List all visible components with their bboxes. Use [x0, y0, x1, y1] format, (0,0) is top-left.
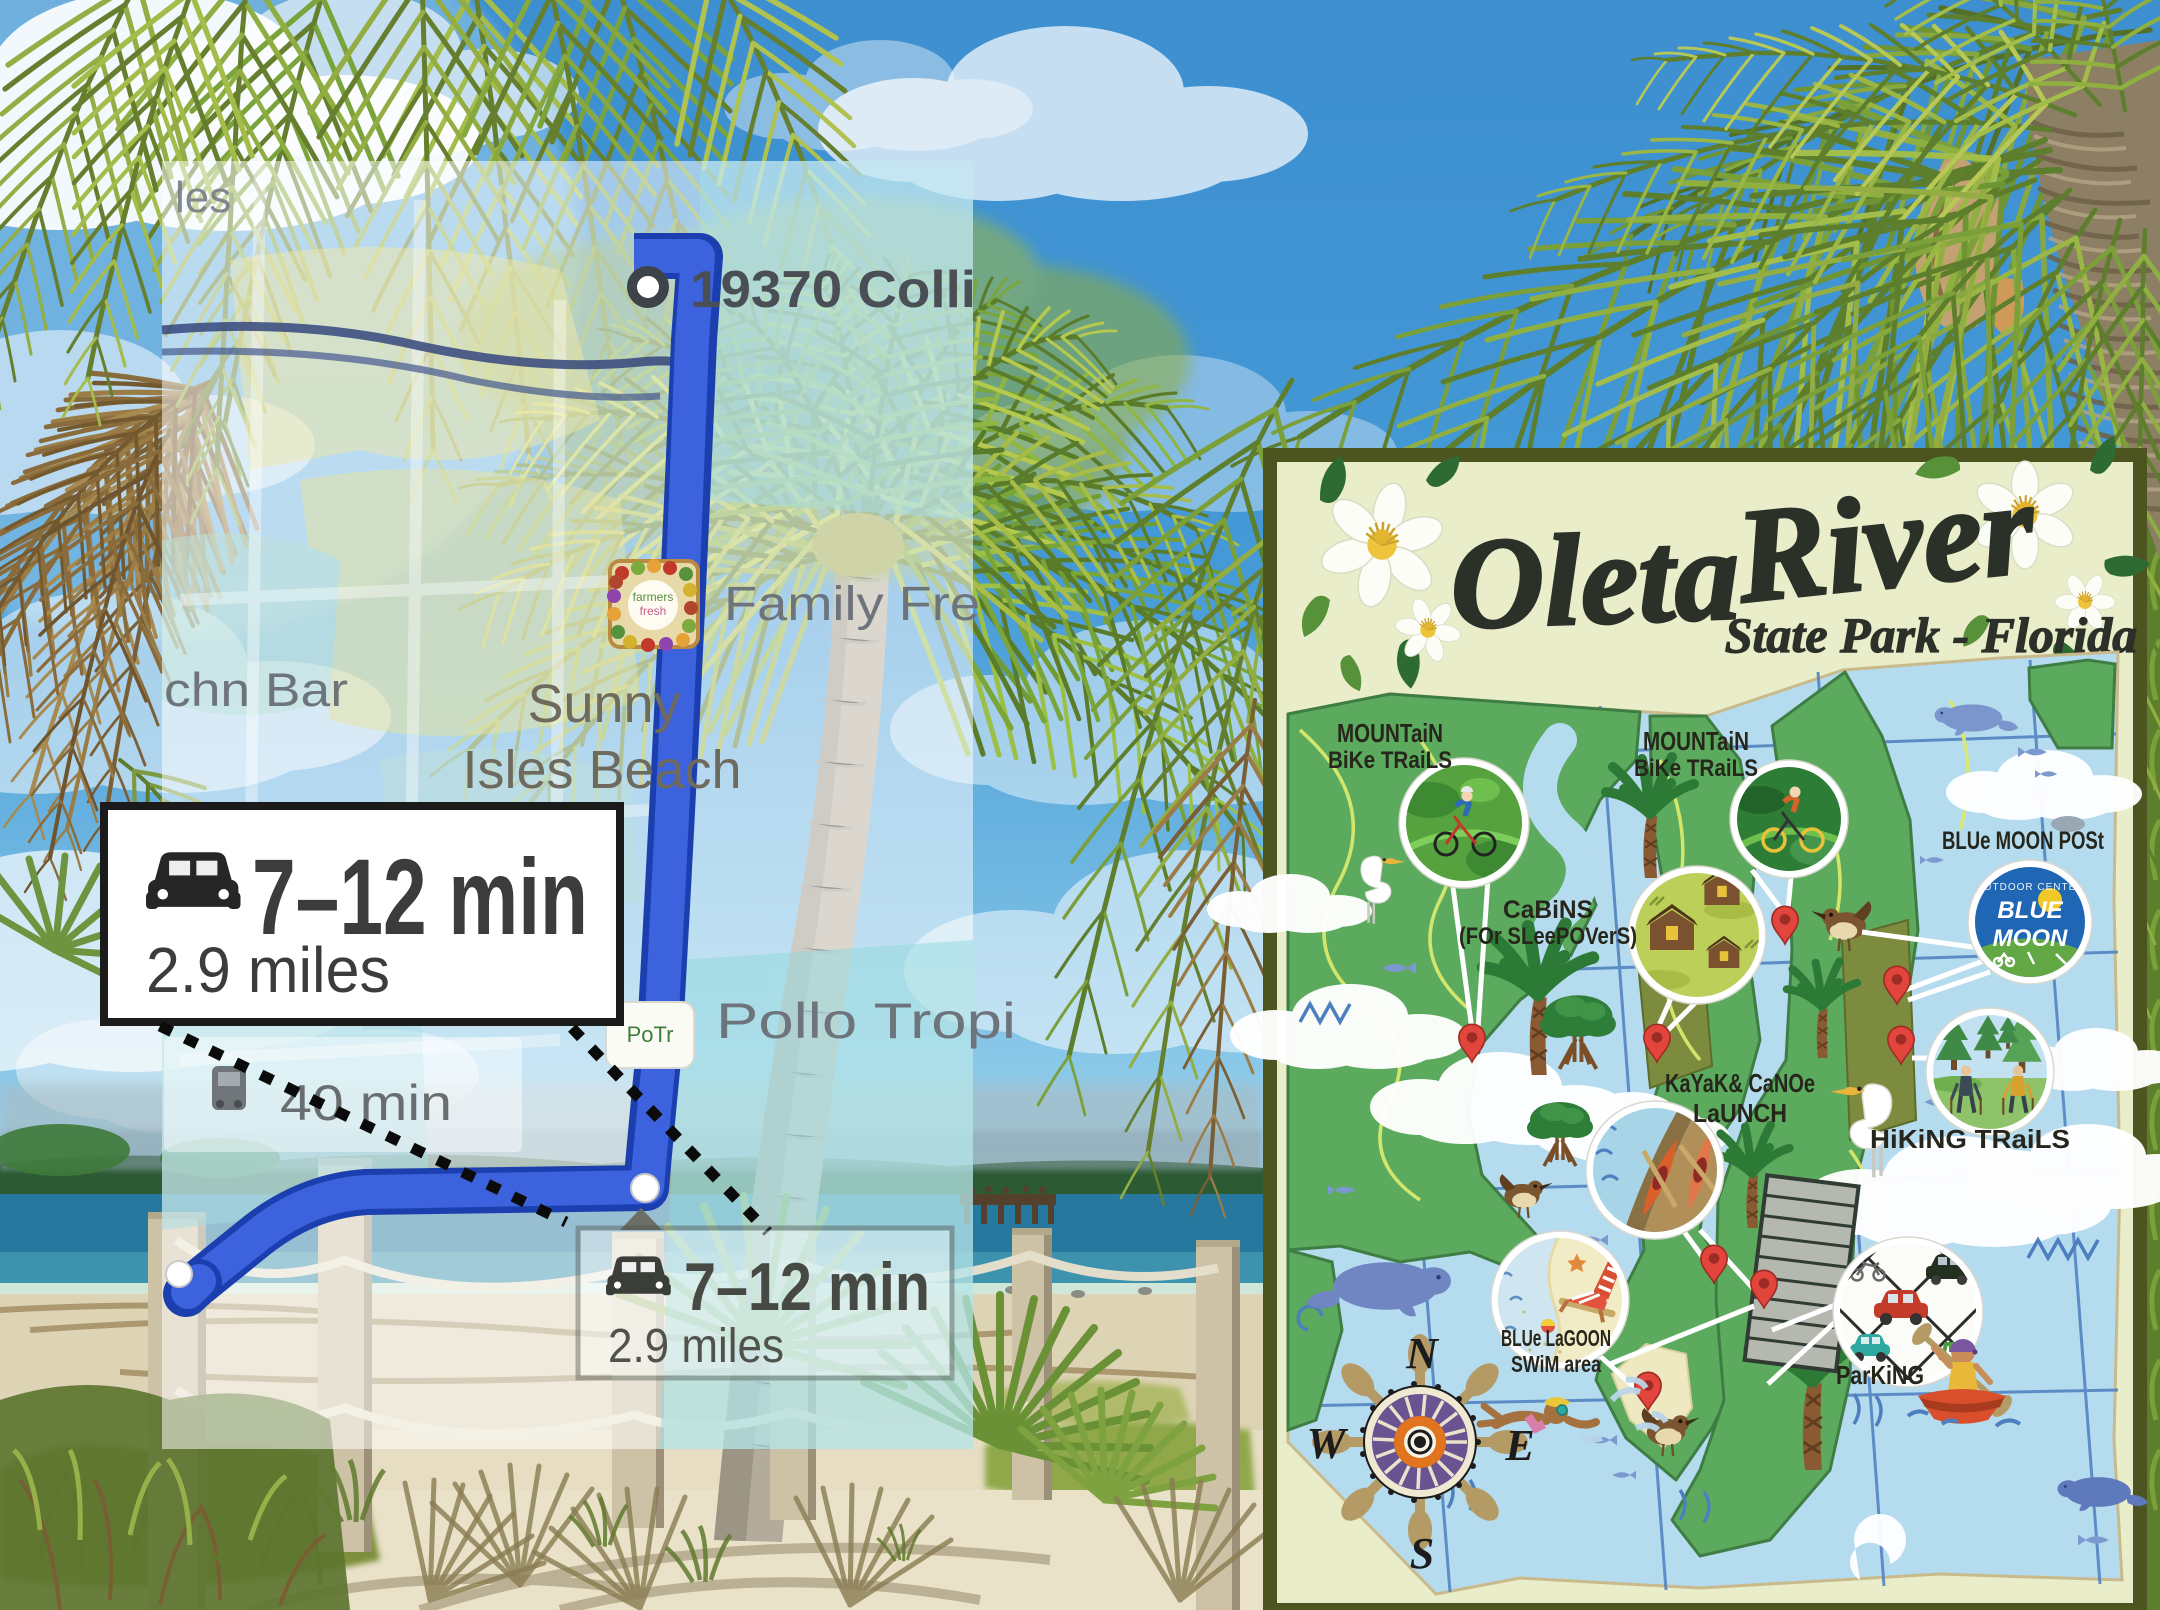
svg-text:MOON: MOON: [1993, 925, 2068, 952]
svg-text:W: W: [1306, 1419, 1348, 1468]
svg-text:BiKe TRaiLS: BiKe TRaiLS: [1634, 755, 1758, 782]
svg-text:CaBiNS: CaBiNS: [1503, 896, 1593, 924]
svg-text:Family Fre: Family Fre: [724, 578, 980, 631]
svg-text:N: N: [1405, 1329, 1440, 1378]
svg-text:SWiM area: SWiM area: [1511, 1351, 1601, 1377]
svg-text:S: S: [1410, 1529, 1434, 1578]
svg-text:MOUNTaiN: MOUNTaiN: [1643, 726, 1749, 756]
svg-text:BiKe TRaiLS: BiKe TRaiLS: [1328, 747, 1452, 774]
svg-text:2.9 miles: 2.9 miles: [146, 934, 390, 1006]
svg-text:fresh: fresh: [640, 604, 667, 618]
svg-text:les: les: [175, 173, 231, 222]
svg-text:E: E: [1504, 1421, 1534, 1470]
svg-text:19370 Colli: 19370 Colli: [690, 261, 976, 319]
svg-text:MOUNTaiN: MOUNTaiN: [1337, 718, 1443, 748]
svg-text:(FOr SLeePOVerS): (FOr SLeePOVerS): [1459, 923, 1637, 950]
svg-text:PoTr: PoTr: [627, 1022, 674, 1047]
svg-text:chn Bar: chn Bar: [164, 663, 348, 716]
svg-text:Oleta: Oleta: [1448, 503, 1742, 657]
svg-text:2.9 miles: 2.9 miles: [608, 1320, 784, 1373]
svg-text:farmers: farmers: [633, 590, 674, 604]
svg-text:Pollo Tropi: Pollo Tropi: [716, 993, 1016, 1049]
svg-text:ParKiNG: ParKiNG: [1836, 1360, 1924, 1390]
svg-text:7–12 min: 7–12 min: [684, 1249, 930, 1325]
svg-text:HiKiNG TRaiLS: HiKiNG TRaiLS: [1870, 1124, 2070, 1154]
svg-text:BLUE: BLUE: [1997, 897, 2063, 924]
svg-text:Sunny: Sunny: [527, 674, 680, 734]
svg-text:Isles Beach: Isles Beach: [463, 740, 742, 800]
svg-text:LaUNCH: LaUNCH: [1693, 1098, 1787, 1128]
svg-text:KaYaK& CaNOe: KaYaK& CaNOe: [1665, 1068, 1815, 1098]
svg-text:OUTDOOR CENTER: OUTDOOR CENTER: [1976, 882, 2085, 893]
svg-text:BLUe LaGOON: BLUe LaGOON: [1501, 1325, 1611, 1351]
svg-text:BLUe MOON POSt: BLUe MOON POSt: [1942, 827, 2104, 855]
svg-text:River: River: [1729, 452, 2043, 631]
